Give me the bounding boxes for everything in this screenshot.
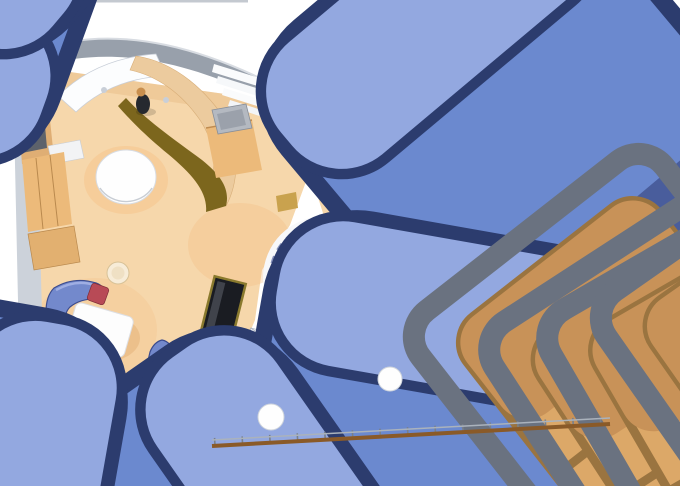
entry-cabinets <box>22 152 72 232</box>
suite-floor-plan-svg <box>0 0 680 486</box>
deck-table-2 <box>378 367 402 391</box>
entry-cabinet-lower <box>28 226 80 270</box>
deck-table-1 <box>258 404 284 430</box>
side-table-top <box>112 267 125 280</box>
statue <box>136 94 150 114</box>
wall-sconce-a <box>101 87 107 93</box>
wall-sconce-b <box>163 97 169 103</box>
dining-table <box>96 150 156 204</box>
statue-head <box>137 88 146 97</box>
floor-plan-illustration <box>0 0 680 486</box>
